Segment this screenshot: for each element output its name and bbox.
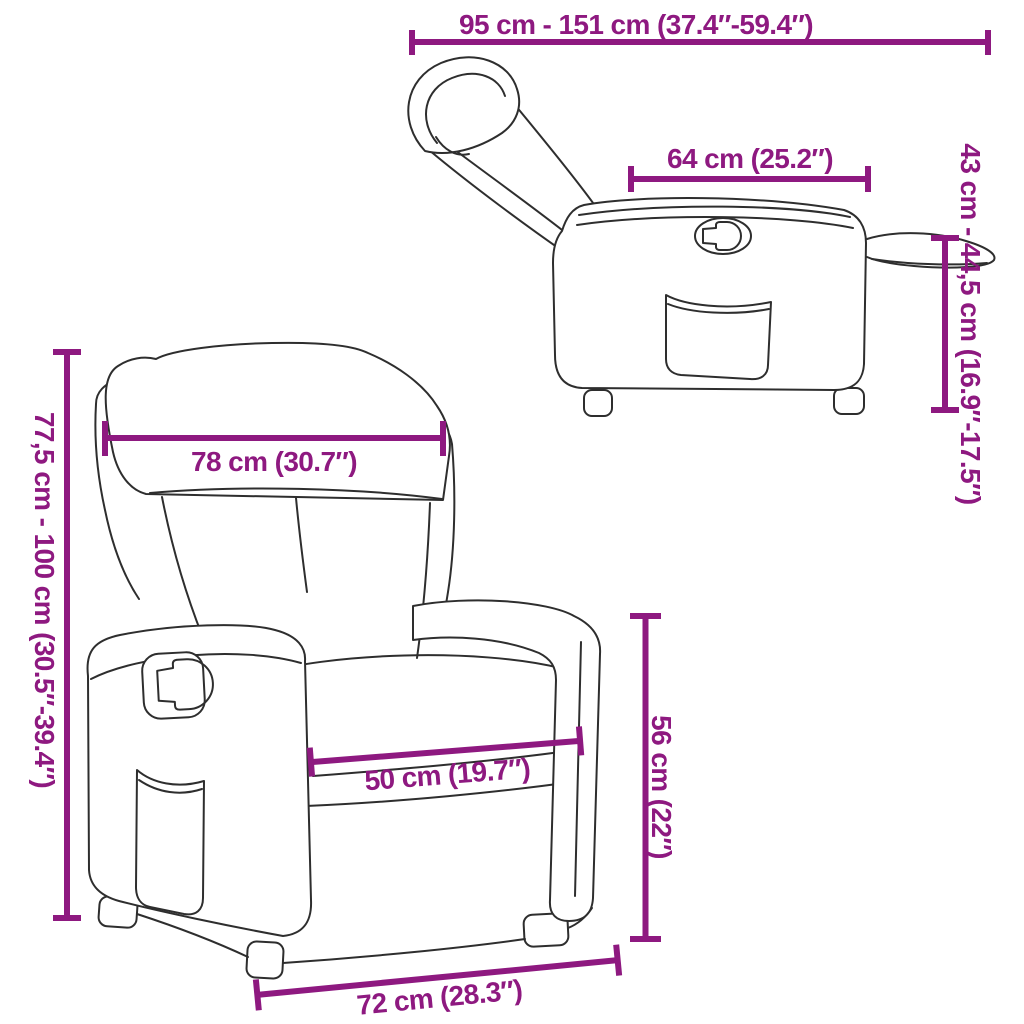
front-center-foot [246,941,284,979]
dimension-footrest-height-range: 43 cm - 44,5 cm (16.9″-17.5″) [931,143,986,504]
footrest-height-range-label: 43 cm - 44,5 cm (16.9″-17.5″) [955,143,986,504]
side-view-drawing [408,57,994,416]
backrest-lower-edge [429,150,564,252]
side-recline-lever [695,218,751,254]
diagram-canvas: 95 cm - 151 cm (37.4″-59.4″) 64 cm (25.2… [0,0,1024,1024]
backrest-center-crease [296,498,307,592]
dimension-seat-width: 50 cm (19.7″) [310,726,583,800]
total-height-range-label: 77,5 cm - 100 cm (30.5″-39.4″) [29,412,60,788]
seat-top-depth-label: 64 cm (25.2″) [667,143,833,174]
side-headrest [408,57,519,153]
backrest-width-label: 78 cm (30.7″) [191,446,357,477]
base-edge-front [283,939,525,963]
product-dimension-diagram: 95 cm - 151 cm (37.4″-59.4″) 64 cm (25.2… [0,0,1024,1024]
dimension-seat-height: 56 cm (22″) [630,616,677,939]
dimension-base-width: 72 cm (28.3″) [256,945,621,1024]
dimension-tick [616,945,619,976]
side-left-foot [584,390,612,416]
side-right-foot [834,388,864,414]
dimension-seat-top-depth: 64 cm (25.2″) [631,143,868,192]
reclined-length-label: 95 cm - 151 cm (37.4″-59.4″) [459,9,813,40]
dimension-tick [579,726,581,755]
dimension-tick [310,748,312,777]
dimension-total-height-range: 77,5 cm - 100 cm (30.5″-39.4″) [29,352,81,918]
dimension-reclined-length: 95 cm - 151 cm (37.4″-59.4″) [412,9,988,55]
seat-height-label: 56 cm (22″) [646,715,677,859]
dimension-tick [256,979,259,1010]
